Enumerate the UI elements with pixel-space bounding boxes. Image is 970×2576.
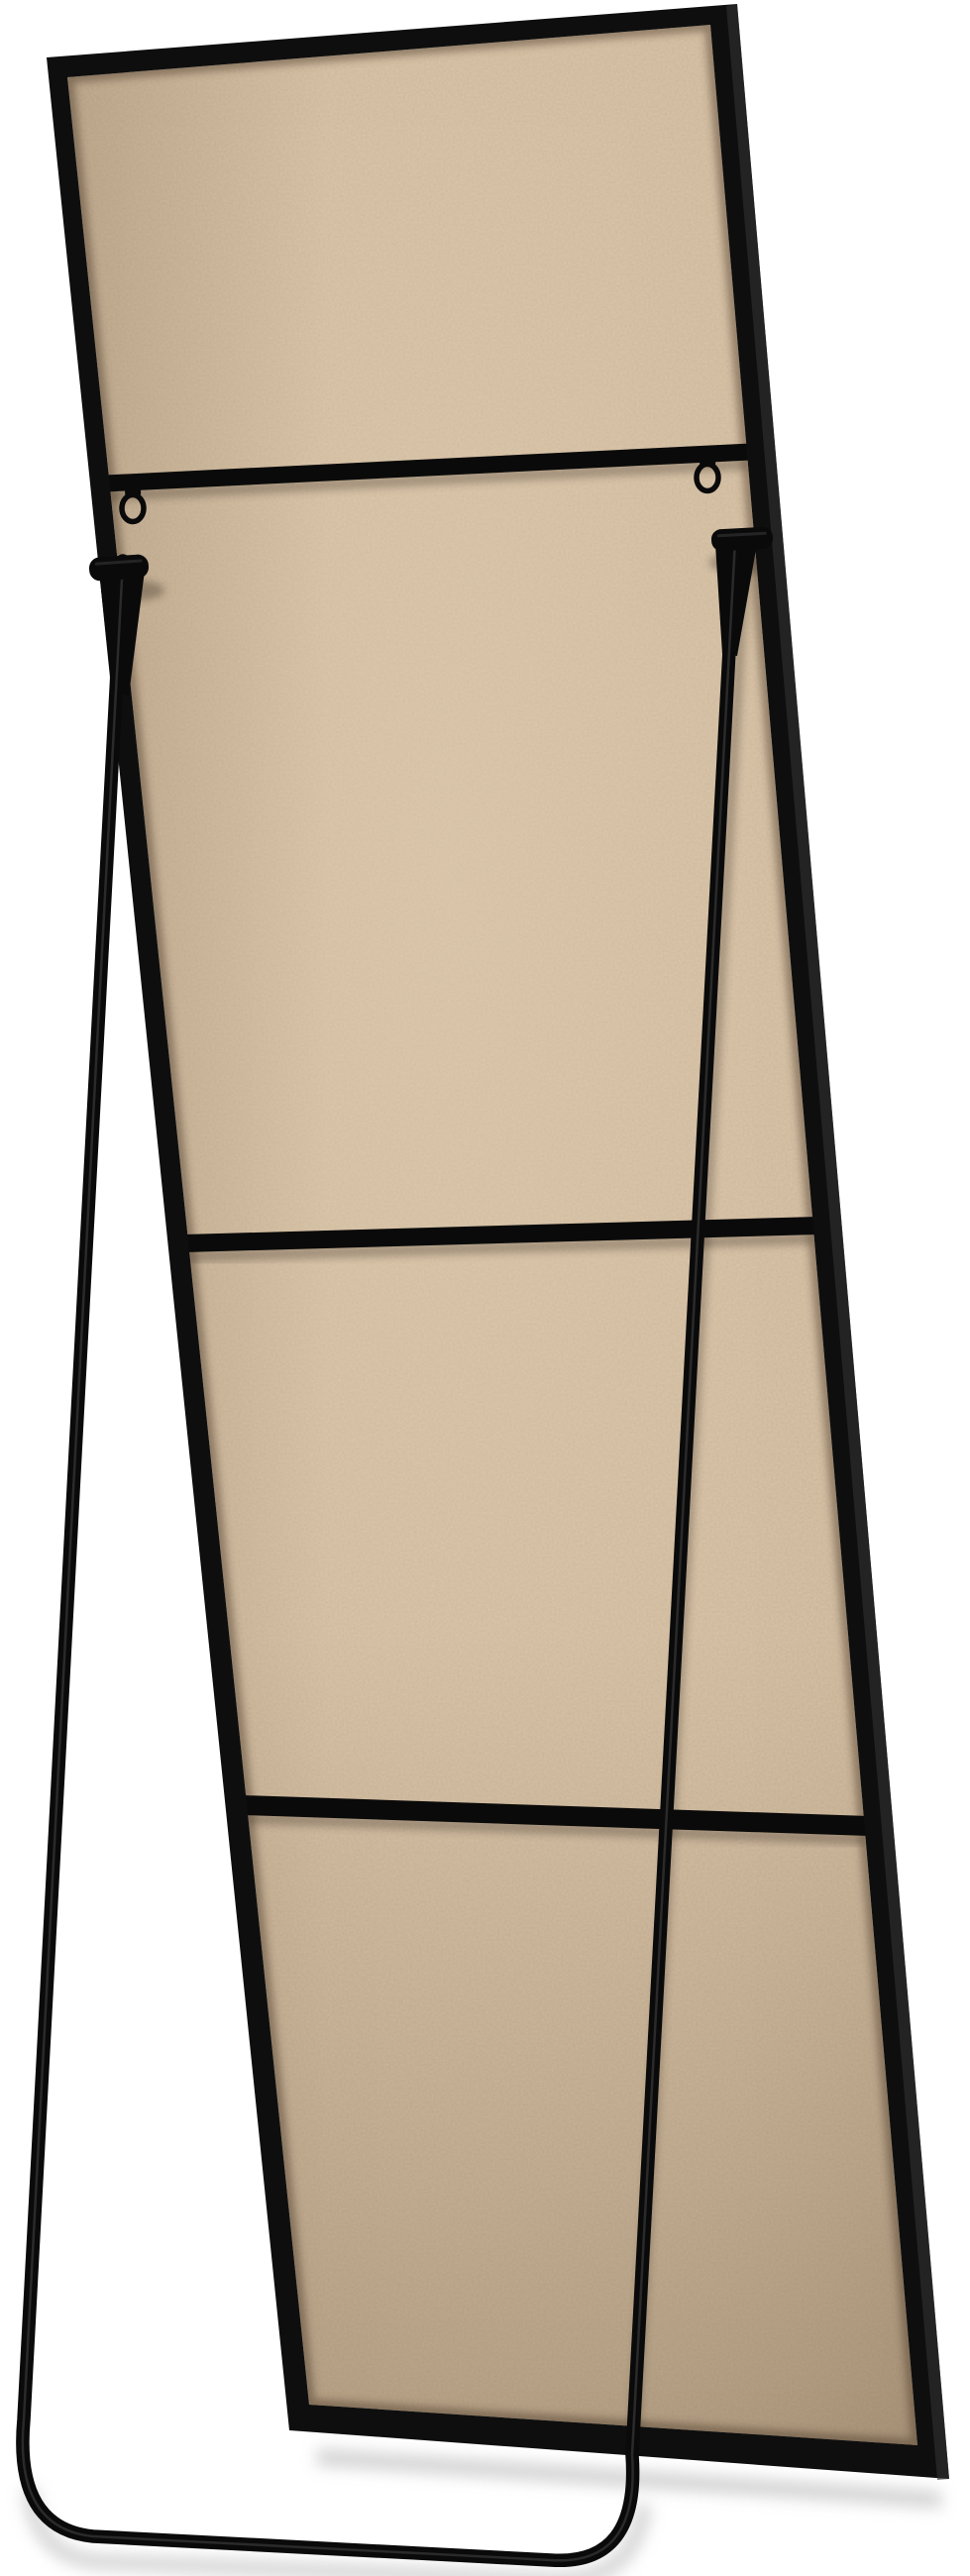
product-photo: Rear view of a free-standing full-length… bbox=[0, 0, 970, 2576]
mirror-back-view-illustration: Rear view of a free-standing full-length… bbox=[0, 0, 970, 2576]
hinge-left bbox=[88, 554, 150, 582]
hinge-right bbox=[710, 526, 773, 551]
